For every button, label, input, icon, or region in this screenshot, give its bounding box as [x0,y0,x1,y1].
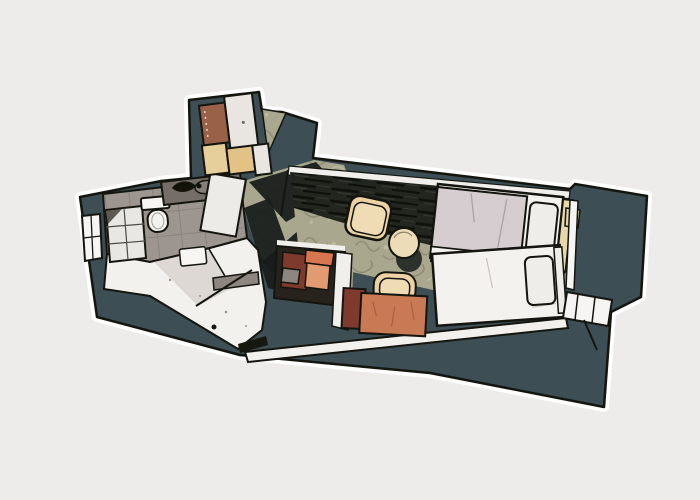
bed1-duvet [431,187,527,256]
minibar-box-front [305,263,330,290]
illustration-canvas [0,0,700,500]
armchair-cushion [349,201,388,237]
left-window [82,214,102,261]
wardrobe-door-tan [226,146,255,175]
bath-mat [179,247,207,267]
wardrobe-door-cream [202,143,229,176]
wardrobe-door-white [224,93,258,150]
door-stop-dot [212,325,217,330]
minibar-gray-box [281,268,300,284]
bed2-pillow [524,256,555,306]
armchair [344,194,393,242]
faucet-handle [197,184,202,189]
shower [106,206,146,262]
wardrobe-door-white-low [252,144,272,176]
bed-2 [432,245,567,326]
floorplan-illustration [0,0,700,500]
